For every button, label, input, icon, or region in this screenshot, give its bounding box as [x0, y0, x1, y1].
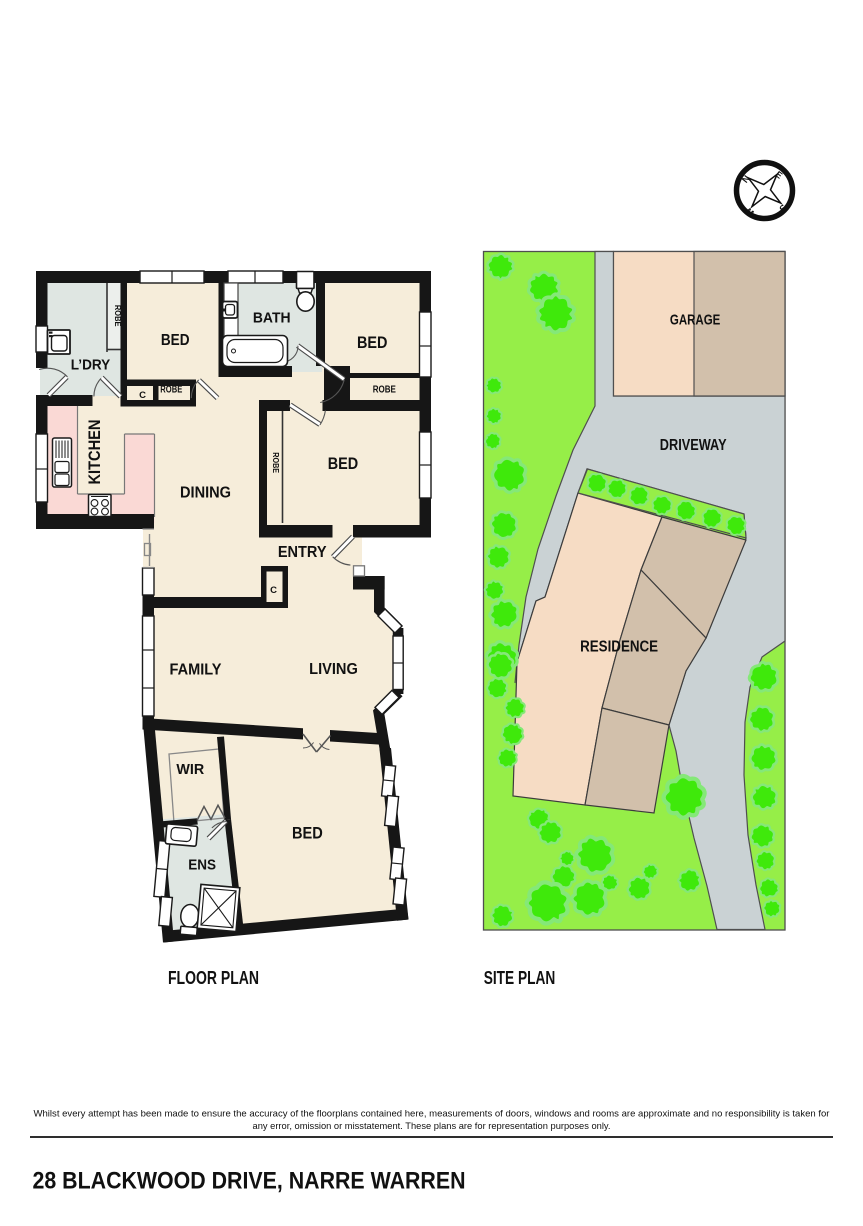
svg-text:FLOOR PLAN: FLOOR PLAN — [168, 968, 259, 988]
svg-text:ENTRY: ENTRY — [278, 544, 327, 561]
svg-text:ROBE: ROBE — [160, 384, 182, 396]
svg-text:BATH: BATH — [253, 311, 291, 327]
svg-text:KITCHEN: KITCHEN — [86, 420, 104, 485]
svg-text:ENS: ENS — [188, 857, 216, 874]
svg-text:ROBE: ROBE — [271, 452, 281, 473]
svg-text:DINING: DINING — [180, 484, 231, 501]
svg-text:LIVING: LIVING — [309, 661, 358, 678]
svg-text:WIR: WIR — [176, 761, 204, 778]
svg-text:BED: BED — [161, 332, 190, 349]
svg-text:28 BLACKWOOD DRIVE, NARRE WARR: 28 BLACKWOOD DRIVE, NARRE WARREN — [33, 1168, 466, 1195]
svg-text:GARAGE: GARAGE — [670, 312, 720, 329]
svg-text:FAMILY: FAMILY — [170, 662, 223, 679]
svg-text:RESIDENCE: RESIDENCE — [580, 638, 658, 655]
svg-text:any error, omission or misstat: any error, omission or misstatement. The… — [253, 1121, 611, 1132]
svg-text:C: C — [270, 585, 277, 596]
svg-text:DRIVEWAY: DRIVEWAY — [660, 437, 727, 454]
svg-text:BED: BED — [357, 333, 388, 352]
svg-text:ROBE: ROBE — [373, 385, 396, 396]
svg-text:L’DRY: L’DRY — [71, 357, 111, 374]
svg-text:ROBE: ROBE — [113, 305, 123, 327]
svg-text:Whilst every attempt has been: Whilst every attempt has been made to en… — [34, 1109, 830, 1120]
svg-text:BED: BED — [292, 824, 323, 843]
svg-text:SITE PLAN: SITE PLAN — [484, 968, 556, 988]
svg-text:BED: BED — [328, 454, 359, 473]
svg-text:C: C — [139, 390, 146, 401]
